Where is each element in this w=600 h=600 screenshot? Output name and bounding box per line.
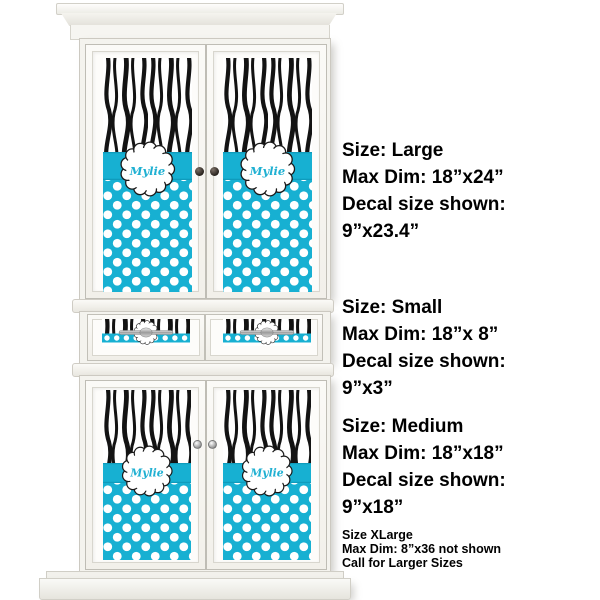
decal-size-label: Decal size shown: xyxy=(342,348,506,375)
max-dim: Max Dim: 18”x 8” xyxy=(342,321,506,348)
size-block-large: Size: Large Max Dim: 18”x24” Decal size … xyxy=(342,137,506,245)
max-dim: Max Dim: 18”x24” xyxy=(342,164,506,191)
max-dim: Max Dim: 8”x36 not shown xyxy=(342,542,501,556)
polka-dot-panel xyxy=(103,180,192,292)
size-block-small: Size: Small Max Dim: 18”x 8” Decal size … xyxy=(342,294,506,402)
lower-right-door-decal: Mylie xyxy=(223,390,311,560)
max-dim: Max Dim: 18”x18” xyxy=(342,440,506,467)
right-drawer-decal xyxy=(223,319,311,346)
drawer-pull-knob xyxy=(140,328,152,337)
size-title: Size: Small xyxy=(342,294,506,321)
upper-left-door-knob xyxy=(195,167,204,176)
size-title: Size: Medium xyxy=(342,413,506,440)
upper-left-door-decal: Mylie xyxy=(103,58,192,292)
polka-dot-panel xyxy=(223,180,312,292)
armoire-base-plinth xyxy=(39,578,351,600)
decal-size-label: Decal size shown: xyxy=(342,191,506,218)
decal-size-value: 9”x3” xyxy=(342,375,506,402)
left-drawer-decal xyxy=(102,319,190,346)
lower-left-door-knob xyxy=(193,440,202,449)
size-block-medium: Size: Medium Max Dim: 18”x18” Decal size… xyxy=(342,413,506,521)
size-title: Size XLarge xyxy=(342,528,501,542)
product-image: Mylie Mylie xyxy=(0,0,600,600)
lower-left-door-decal: Mylie xyxy=(103,390,191,560)
decal-size-label: Decal size shown: xyxy=(342,467,506,494)
call-note: Call for Larger Sizes xyxy=(342,556,501,570)
size-block-xlarge: Size XLarge Max Dim: 8”x36 not shown Cal… xyxy=(342,528,501,570)
decal-size-value: 9”x18” xyxy=(342,494,506,521)
monogram-name: Mylie xyxy=(249,467,283,480)
upper-right-door-decal: Mylie xyxy=(223,58,312,292)
drawer-pull-knob xyxy=(261,328,273,337)
monogram-name: Mylie xyxy=(129,164,165,178)
zebra-panel xyxy=(103,58,192,152)
monogram-name: Mylie xyxy=(129,467,163,480)
size-title: Size: Large xyxy=(342,137,506,164)
zebra-panel xyxy=(223,58,312,152)
upper-right-door-knob xyxy=(210,167,219,176)
decal-size-value: 9”x23.4” xyxy=(342,218,506,245)
monogram-name: Mylie xyxy=(249,164,285,178)
lower-right-door-knob xyxy=(208,440,217,449)
